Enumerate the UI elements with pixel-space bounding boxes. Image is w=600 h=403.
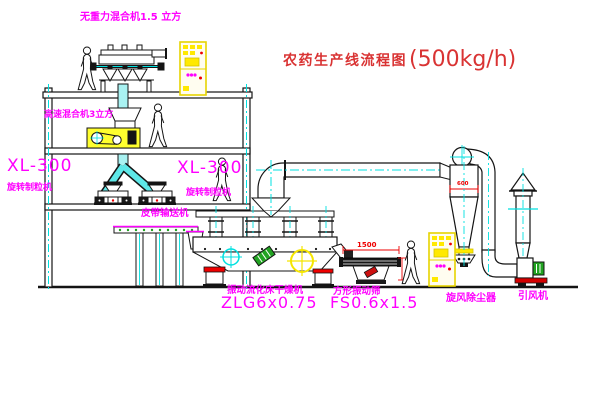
dryer-exhaust-duct [252, 160, 452, 217]
label-cyclone: 旋风除尘器 [446, 294, 496, 304]
label-belt-conveyor: 皮带输送机 [141, 209, 189, 219]
cad-flow-diagram: 农药生产线流程图 (500kg/h) 无重力混合机1.5 立方 高速混合机3立方… [0, 0, 600, 403]
cyclone-separator [450, 145, 517, 277]
label-gravity-mixer: 无重力混合机1.5 立方 [80, 13, 181, 23]
label-dryer-model: ZLG6x0.75 [221, 295, 318, 311]
person-second-floor [149, 104, 166, 147]
label-granulator-left-name: 旋转制粒机 [7, 184, 52, 193]
diagram-title-capacity: (500kg/h) [409, 47, 516, 72]
diagram-title: 农药生产线流程图 (500kg/h) [283, 47, 516, 72]
induced-draft-fan [515, 258, 547, 286]
label-high-speed-mixer: 高速混合机3立方 [44, 111, 113, 120]
label-granulator-right-model: XL-300 [177, 160, 242, 177]
feed-pipe-top [118, 84, 128, 109]
belt-conveyor [113, 227, 198, 287]
granulator-left [94, 182, 132, 205]
control-cabinet-2 [429, 233, 455, 286]
fluid-bed-dryer [186, 206, 352, 287]
control-cabinet-1 [180, 42, 206, 95]
label-granulator-right-name: 旋转制粒机 [186, 189, 231, 198]
square-vibrating-sieve [339, 246, 406, 284]
diagram-title-text: 农药生产线流程图 [283, 50, 407, 70]
label-granulator-left-model: XL-300 [7, 158, 72, 175]
label-sieve-model: FS0.6x1.5 [330, 295, 418, 311]
label-fan: 引风机 [518, 292, 548, 302]
dimension-sieve-length: 1500 [357, 242, 376, 249]
dimension-cyclone-diameter: 600 [457, 182, 468, 188]
person-ground-floor [402, 241, 419, 284]
